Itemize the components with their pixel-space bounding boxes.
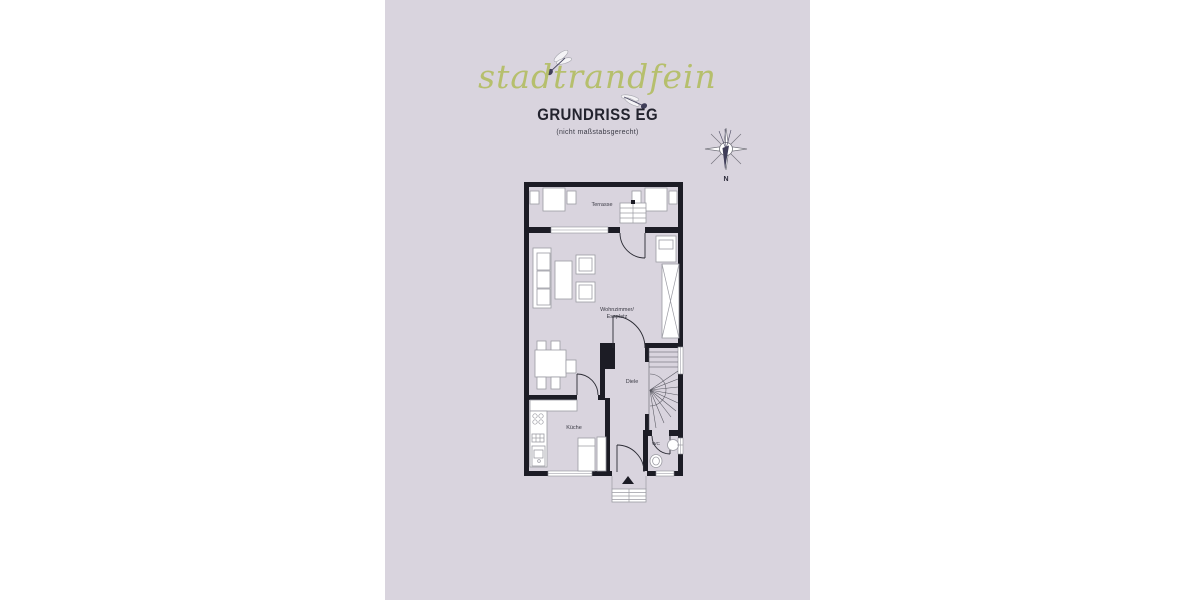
sofa	[533, 248, 551, 308]
wardrobe	[662, 264, 679, 338]
entrance-steps	[612, 489, 646, 502]
page: { "header": { "brand": "stadtrandfein", …	[0, 0, 1200, 600]
room-label-wohnzimmer: Wohnzimmer/	[600, 307, 634, 313]
room-label-terrasse: Terrasse	[591, 202, 612, 208]
kitchen-tall-units	[578, 437, 606, 471]
toilet-icon	[650, 455, 662, 468]
brand-logo: stadtrandfein	[405, 56, 790, 98]
coffee-table	[555, 261, 572, 299]
room-label-essplatz: Essplatz	[607, 314, 628, 320]
dining-set	[535, 341, 576, 389]
walls	[524, 182, 683, 476]
room-label-wc: WC	[652, 441, 661, 447]
floorplan: Terrasse Wohnzimmer/ Essplatz Diele Küch…	[518, 178, 688, 510]
page-title: GRUNDRISS EG	[405, 105, 790, 125]
compass-rose: N	[700, 124, 752, 184]
room-label-kueche: Küche	[566, 425, 582, 431]
entrance-arrow	[622, 476, 634, 484]
spiral-staircase	[649, 348, 678, 430]
room-label-diele: Diele	[626, 379, 639, 385]
armchair	[576, 255, 595, 274]
terrace-steps	[620, 200, 646, 223]
entrance	[612, 476, 646, 502]
sideboard	[656, 236, 676, 262]
armchair	[576, 282, 595, 302]
compass-north-label: N	[723, 176, 728, 183]
brochure-panel: stadtrandfein GRUNDRISS EG (nicht maßsta…	[385, 0, 810, 600]
kitchen-counter	[530, 400, 577, 467]
